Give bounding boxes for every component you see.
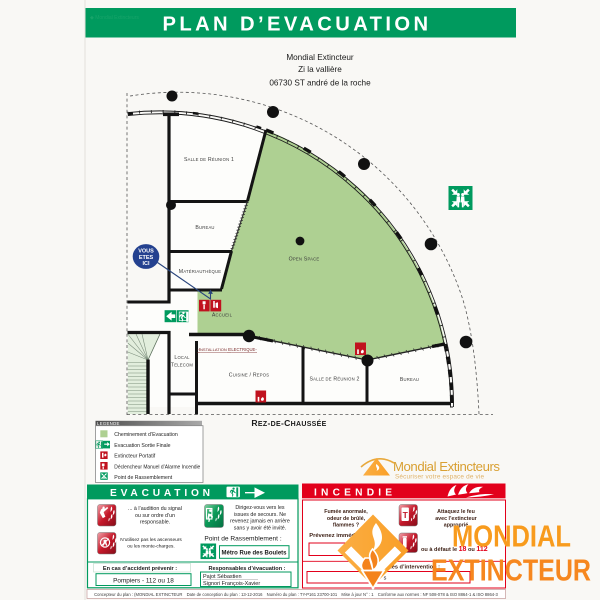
svg-text:ou les monte-charges.: ou les monte-charges. [127, 543, 174, 549]
svg-text:N’utilisez pas les ascenseurs: N’utilisez pas les ascenseurs [120, 537, 182, 543]
svg-text:Concepteur du plan : (MONDIAL: Concepteur du plan : (MONDIAL EXTINCTEUR… [94, 592, 498, 597]
svg-text:INCENDIE: INCENDIE [314, 488, 396, 499]
svg-text:En cas d’accident prévenir :: En cas d’accident prévenir : [103, 566, 177, 572]
svg-text:ETES: ETES [139, 255, 154, 261]
svg-text:Extincteur Portatif: Extincteur Portatif [114, 454, 155, 460]
svg-text:EXTINCTEUR: EXTINCTEUR [431, 553, 591, 588]
svg-text:Point de Rassemblement :: Point de Rassemblement : [204, 536, 281, 543]
svg-text:sans y avoir été invité.: sans y avoir été invité. [234, 525, 286, 531]
svg-text:Métro Rue des Boulets: Métro Rue des Boulets [221, 550, 287, 556]
svg-text:Mondial Extincteurs: Mondial Extincteurs [393, 459, 500, 474]
svg-text:odeur de brûlé,: odeur de brûlé, [327, 516, 366, 522]
svg-text:responsable.: responsable. [140, 520, 170, 526]
svg-text:Pajot Sébastien: Pajot Sébastien [203, 574, 242, 580]
svg-text:MONDIAL: MONDIAL [452, 519, 571, 554]
svg-text:issues de secours. Ne: issues de secours. Ne [234, 512, 286, 518]
svg-text:revenez jamais en arrière: revenez jamais en arrière [230, 519, 290, 525]
svg-text:Dirigez-vous vers les: Dirigez-vous vers les [235, 505, 285, 511]
svg-text:PLAN D’EVACUATION: PLAN D’EVACUATION [162, 14, 431, 36]
svg-text:REZ-DE-CHAUSSÉE: REZ-DE-CHAUSSÉE [251, 418, 326, 428]
svg-text:Responsables d’évacuation :: Responsables d’évacuation : [208, 566, 285, 572]
svg-text:Déclencheur Manuel d’Alarme In: Déclencheur Manuel d’Alarme Incendie [114, 464, 200, 470]
svg-text:ICI: ICI [142, 261, 150, 267]
svg-text:s: s [384, 576, 387, 582]
svg-text:ou sur ordre d’un: ou sur ordre d’un [135, 513, 175, 519]
svg-text:Mondial Extincteur: Mondial Extincteur [286, 53, 354, 62]
svg-text:Zi la vallière: Zi la vallière [298, 65, 342, 74]
svg-text:Pompiers - 112 ou 18: Pompiers - 112 ou 18 [113, 577, 174, 584]
svg-text:06730 ST andré de la roche: 06730 ST andré de la roche [269, 79, 371, 88]
svg-text:... à l’audition du signal: ... à l’audition du signal [128, 506, 182, 512]
svg-text:Fumée anormale,: Fumée anormale, [324, 509, 368, 515]
svg-text:LEGENDE: LEGENDE [97, 421, 120, 426]
svg-text:T: T [403, 510, 409, 520]
svg-text:VOUS: VOUS [138, 249, 154, 255]
svg-text:Point de Rassemblement: Point de Rassemblement [114, 475, 173, 481]
svg-text:◆ Mondial Extincteurs: ◆ Mondial Extincteurs [90, 15, 139, 21]
svg-text:Attaquez le feu: Attaquez le feu [437, 509, 475, 515]
svg-text:flammes ?: flammes ? [333, 523, 359, 529]
svg-text:Cheminement d’Evacuation: Cheminement d’Evacuation [114, 432, 178, 438]
svg-text:Signori François-Xavier: Signori François-Xavier [203, 581, 260, 587]
svg-text:Sécuriser votre espace de vie: Sécuriser votre espace de vie [395, 473, 484, 480]
svg-text:Evacuation Sortie Finale: Evacuation Sortie Finale [114, 443, 170, 449]
svg-text:EVACUATION: EVACUATION [110, 488, 214, 499]
